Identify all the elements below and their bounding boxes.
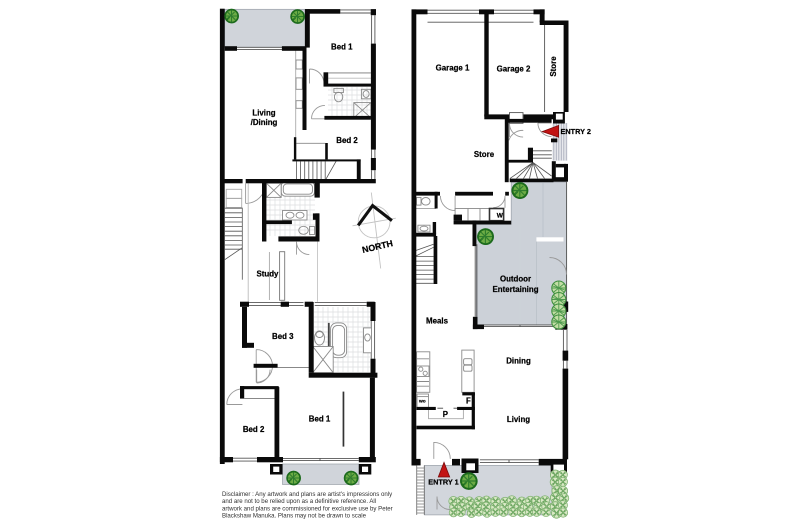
svg-text:Garage 1: Garage 1 <box>436 63 470 72</box>
svg-text:Bed 3: Bed 3 <box>272 332 294 341</box>
svg-text:Garage 2: Garage 2 <box>497 64 531 73</box>
svg-text:Bed 2: Bed 2 <box>336 136 358 145</box>
svg-text:Bed 2: Bed 2 <box>243 425 265 434</box>
svg-text:Store: Store <box>549 56 558 77</box>
svg-text:F: F <box>466 397 471 406</box>
svg-text:Dining: Dining <box>506 357 531 366</box>
svg-text:P: P <box>443 410 448 419</box>
svg-text:Living: Living <box>507 415 530 424</box>
svg-text:Study: Study <box>257 269 280 278</box>
svg-text:Bed 1: Bed 1 <box>331 42 353 51</box>
svg-text:ENTRY 1: ENTRY 1 <box>428 477 458 486</box>
svg-text:NORTH: NORTH <box>361 238 394 255</box>
svg-text:Outdoor: Outdoor <box>500 274 531 283</box>
svg-text:Bed 1: Bed 1 <box>309 414 331 423</box>
svg-text:Meals: Meals <box>426 316 449 325</box>
svg-text:Store: Store <box>474 150 495 159</box>
svg-text:artwork and plans are commissi: artwork and plans are commissioned for e… <box>222 505 393 512</box>
svg-text:wo: wo <box>418 399 426 404</box>
svg-text:ENTRY 2: ENTRY 2 <box>561 127 591 136</box>
svg-text:Living: Living <box>252 109 275 118</box>
svg-text:/Dining: /Dining <box>251 118 278 127</box>
svg-text:and are not to be relied upon: and are not to be relied upon as a defin… <box>222 498 376 505</box>
svg-text:Blackshaw Manuka. Plans may no: Blackshaw Manuka. Plans may not be drawn… <box>222 513 367 520</box>
svg-text:W: W <box>497 212 504 219</box>
svg-text:Entertaining: Entertaining <box>492 285 538 294</box>
svg-text:Disclaimer : Any artwork and p: Disclaimer : Any artwork and plans are a… <box>222 491 393 498</box>
